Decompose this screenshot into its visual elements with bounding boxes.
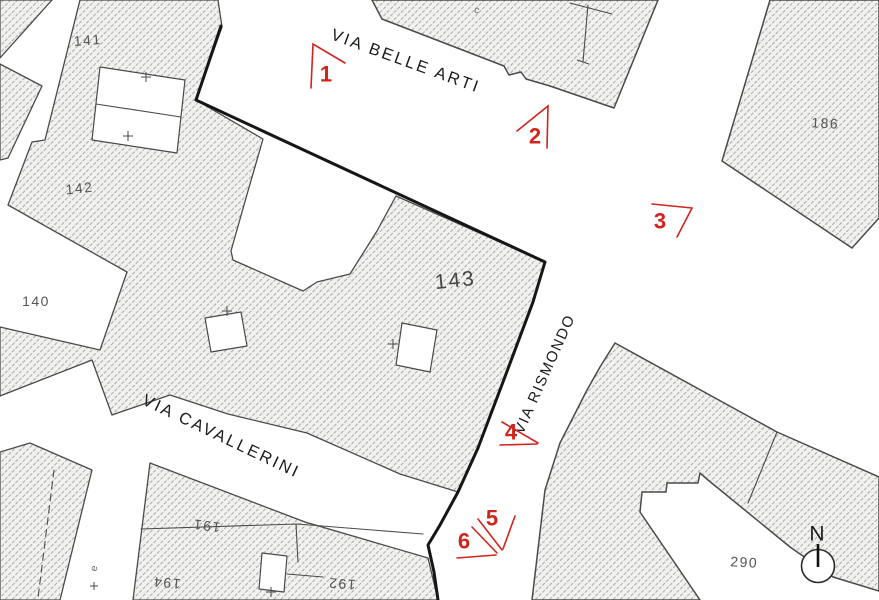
marker-3: 3 [652,204,692,237]
building-square-192 [259,553,287,592]
block-topleft-corner [0,0,52,58]
marker-6-label: 6 [458,529,470,554]
parcel-191: 191 [192,516,222,535]
marker-6: 6 [457,527,497,558]
marker-2: 2 [517,106,548,149]
marker-5: 5 [478,506,515,551]
parcel-142: 142 [65,179,94,198]
north-label: N [809,523,824,546]
marker-4-label: 4 [505,420,518,445]
parcel-143: 143 [434,267,477,294]
block-bottom-left [0,443,92,600]
parcel-141: 141 [73,31,102,49]
marker-1-label: 1 [320,62,332,87]
edge-partial-text: e [89,564,101,572]
parcel-290: 290 [730,553,759,570]
map-canvas: VIA BELLE ARTI VIA RISMONDO VIA CAVALLER… [0,0,879,600]
courtyard-square-left [205,312,247,352]
marker-5-label: 5 [486,506,498,531]
block-top-center [372,0,658,108]
courtyard-square-143 [396,323,437,372]
block-top-right [722,0,879,248]
marker-2-label: 2 [529,124,541,149]
marker-1: 1 [311,44,345,88]
marker-3-label: 3 [654,209,666,234]
parcel-194: 194 [152,574,181,592]
parcel-192: 192 [327,575,356,593]
parcel-140: 140 [22,293,50,309]
parcel-186: 186 [811,114,840,131]
cadastral-map: VIA BELLE ARTI VIA RISMONDO VIA CAVALLER… [0,0,879,600]
